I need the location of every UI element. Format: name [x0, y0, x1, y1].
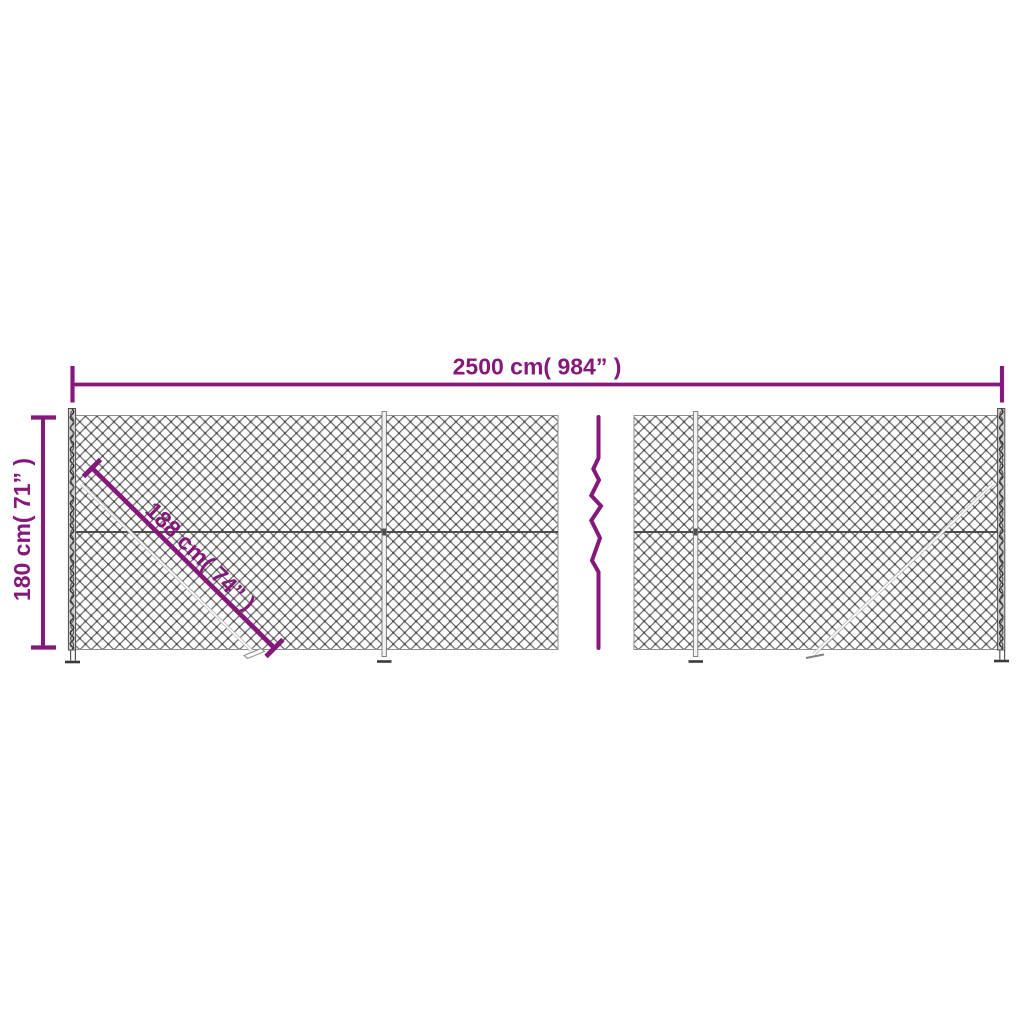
svg-text:2500 cm( 984” ): 2500 cm( 984” ): [453, 354, 622, 380]
svg-text:180 cm( 71” ): 180 cm( 71” ): [9, 458, 35, 601]
